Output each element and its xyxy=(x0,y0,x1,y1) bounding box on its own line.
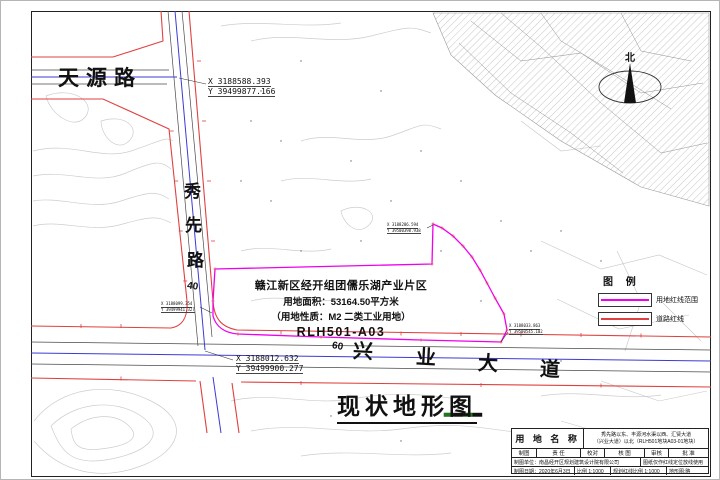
coord-y: Y 39499900.277 xyxy=(236,364,303,374)
coord-y: Y 39499877.166 xyxy=(208,87,275,97)
road-label-tianyuan: 天源路 xyxy=(58,62,142,92)
coord-x: X 3188588.393 xyxy=(208,77,271,87)
drafting-date: 制图日期：2020年6月3日 xyxy=(512,467,574,475)
title-block-name-row: 用 地 名 称 秀先路以东、丰源河水渠以西、汇贤大道 （兴业大道）以北（RLH5… xyxy=(512,429,708,448)
coord-x: X 3188012.632 xyxy=(236,354,299,364)
coord-label-parcel-se: X 3188033.863 Y 39500545.102 xyxy=(509,324,543,335)
title-block: 用 地 名 称 秀先路以东、丰源河水渠以西、汇贤大道 （兴业大道）以北（RLH5… xyxy=(511,428,709,474)
drawing-scale: 比例 1:1000 xyxy=(574,467,610,475)
coord-label-parcel-nw: X 3188286.594 Y 39500398.938 xyxy=(387,223,421,234)
road-char: 道 xyxy=(539,352,560,382)
legend-item-label: 用地红线范围 xyxy=(656,295,698,305)
road-char: 路 xyxy=(187,246,204,271)
drawing-page: 天源路 秀 先 路 40 60 兴 业 大 道 X 3188588.393 Y … xyxy=(0,0,720,480)
legend-item-label: 道路红线 xyxy=(656,314,684,324)
north-arrow: 北 xyxy=(597,49,663,113)
coord-label-south-junction: X 3188012.632 Y 39499900.277 xyxy=(236,354,303,374)
legend-title: 图 例 xyxy=(603,273,698,288)
legend-item-parcel-redline: 用地红线范围 xyxy=(598,293,698,307)
title-block-unit-row: 制图单位：南昌经开区规划建筑设计院有限公司 图纸仅作红线定位放线使用 xyxy=(512,457,708,466)
field-proofread: 校对 xyxy=(580,449,604,457)
coord-label-parcel-sw: X 3188099.354 Y 39499941.327 xyxy=(161,302,195,313)
terrain-note: 地形图:略 xyxy=(666,467,708,475)
drawing-title: 现状地形图 xyxy=(337,387,477,424)
road-char: 先 xyxy=(185,211,202,236)
field-approve: 批 准 xyxy=(668,449,708,457)
coord-y: Y 39500398.938 xyxy=(387,229,421,235)
road-char: 秀 xyxy=(184,177,201,202)
north-arrow-icon xyxy=(597,61,663,111)
parcel-description-block: 赣江新区经开组团儒乐湖产业片区 用地面积：53164.50平方米 （用地性质：M… xyxy=(241,277,441,339)
parcel-code: RLH501-A03 xyxy=(241,325,441,339)
land-name-line1: 秀先路以东、丰源河水渠以西、汇贤大道 xyxy=(601,432,691,439)
redline-scale: 规划红线比例 1:1000 xyxy=(610,467,666,475)
field-responsible: 责 任 xyxy=(536,449,580,457)
land-name-label: 用 地 名 称 xyxy=(512,429,583,448)
road-char: 大 xyxy=(477,346,498,376)
land-name-value: 秀先路以东、丰源河水渠以西、汇贤大道 （兴业大道）以北（RLH501地块A03-… xyxy=(583,429,708,448)
road-redline-swatch-icon xyxy=(598,312,652,326)
coord-y: Y 39499941.327 xyxy=(161,308,195,314)
legend: 图 例 用地红线范围 道路红线 xyxy=(598,273,698,326)
coord-label-north-junction: X 3188588.393 Y 39499877.166 xyxy=(208,77,275,97)
land-name-line2: （兴业大道）以北（RLH501地块A03-01地块） xyxy=(594,439,698,446)
field-drafter: 制图 xyxy=(512,449,536,457)
drawing-note: 图纸仅作红线定位放线使用 xyxy=(640,458,708,466)
parcel-district-name: 赣江新区经开组团儒乐湖产业片区 xyxy=(241,277,441,293)
field-check-drawing: 核 图 xyxy=(604,449,644,457)
parcel-redline-swatch-icon xyxy=(598,293,652,307)
road-width-label: 40 xyxy=(186,280,199,292)
parcel-land-use: （用地性质：M2 二类工业用地） xyxy=(241,309,441,323)
title-block-signature-row: 制图 责 任 校对 核 图 审核 批 准 xyxy=(512,448,708,457)
drafting-unit: 制图单位：南昌经开区规划建筑设计院有限公司 xyxy=(512,458,640,466)
parcel-area: 用地面积：53164.50平方米 xyxy=(241,294,441,308)
title-block-date-row: 制图日期：2020年6月3日 比例 1:1000 规划红线比例 1:1000 地… xyxy=(512,466,708,475)
road-width-label: 60 xyxy=(331,340,344,353)
urban-hatch-area xyxy=(433,13,709,206)
road-char: 业 xyxy=(415,340,436,370)
coord-y: Y 39500545.102 xyxy=(509,330,543,336)
field-review: 审核 xyxy=(644,449,668,457)
legend-item-road-redline: 道路红线 xyxy=(598,312,698,326)
